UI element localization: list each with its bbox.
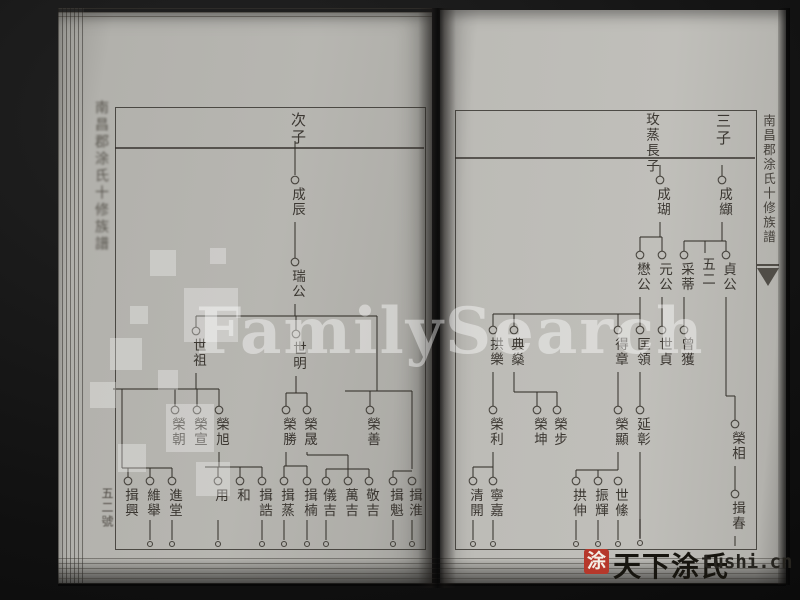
logo-square: [196, 462, 230, 496]
tree-node-label: 維舉: [142, 488, 162, 518]
node-circle: [391, 542, 396, 547]
tree-node-label: 延彰: [632, 417, 652, 447]
node-circle: [594, 477, 602, 485]
fishtail-bar: [757, 264, 779, 266]
logo-square: [210, 248, 226, 264]
node-circle: [722, 251, 730, 259]
logo-square: [166, 404, 214, 452]
node-circle: [636, 251, 644, 259]
node-circle: [680, 251, 688, 259]
node-circle: [291, 258, 299, 266]
node-circle: [469, 477, 477, 485]
tree-node-label: 世絛: [610, 488, 630, 518]
node-circle: [389, 477, 397, 485]
tree-node-label: 榮利: [485, 417, 505, 447]
scanned-book-spread: 次子 玫蒸長子 三子 成辰瑞公世祖世明榮朝榮宣榮旭榮勝榮晟榮善揖興維舉進堂用和揖…: [0, 0, 800, 600]
logo-square: [158, 370, 178, 390]
tree-node-label: 寧嘉: [485, 488, 505, 518]
tushi-site-text: tushi.cn: [701, 551, 793, 573]
node-circle: [410, 542, 415, 547]
spine-title-text: 南昌郡涂氏十修族譜: [90, 100, 110, 253]
logo-square: [110, 338, 142, 370]
tree-node-label: 進堂: [164, 488, 184, 518]
tree-node-label: 成辰: [287, 187, 307, 217]
tree-node-label: 元公: [654, 262, 674, 292]
tree-node-label: 揖蒸: [276, 488, 296, 518]
node-circle: [168, 477, 176, 485]
node-circle: [280, 477, 288, 485]
tree-node-label: 采蒂: [676, 262, 696, 292]
fishtail-icon: [757, 268, 779, 286]
tree-node-label: 儀吉: [318, 488, 338, 518]
tree-node-label: 榮步: [549, 417, 569, 447]
node-circle: [291, 176, 299, 184]
node-circle: [215, 406, 223, 414]
tree-node-label: 榮相: [727, 431, 747, 461]
tree-node-label: 榮勝: [278, 417, 298, 447]
node-circle: [718, 176, 726, 184]
left-header-label: 次子: [287, 112, 308, 146]
node-circle: [148, 542, 153, 547]
tree-node-label: 揖興: [120, 488, 140, 518]
node-circle: [656, 176, 664, 184]
tree-node-label: 貞公: [718, 262, 738, 292]
node-circle: [124, 477, 132, 485]
node-circle: [305, 542, 310, 547]
tree-node-label: 榮善: [362, 417, 382, 447]
node-circle: [572, 477, 580, 485]
book-spine-edge: [58, 8, 84, 583]
node-circle: [236, 477, 244, 485]
tree-node-label: 振輝: [590, 488, 610, 518]
node-circle: [489, 406, 497, 414]
node-circle: [344, 477, 352, 485]
tree-node-label: 和: [232, 488, 252, 503]
node-circle: [731, 490, 739, 498]
right-header-secondary-label: 三子: [712, 113, 733, 147]
tree-node-label: 成瑚: [652, 187, 672, 217]
leaf-number: 五二號: [99, 487, 116, 529]
tree-node-label: 萬吉: [340, 488, 360, 518]
tree-node-label: 榮旭: [211, 417, 231, 447]
tree-node-label: 榮顯: [610, 417, 630, 447]
node-circle: [614, 477, 622, 485]
node-circle: [471, 542, 476, 547]
logo-square: [150, 250, 176, 276]
node-circle: [282, 406, 290, 414]
tree-node-label: 揖春: [727, 501, 747, 531]
tree-node-label: 成纈: [714, 187, 734, 217]
right-header-primary-label: 玫蒸長子: [643, 112, 660, 150]
page-stack-top-edge: [58, 8, 432, 20]
tree-node-label: 揖誥: [254, 488, 274, 518]
node-circle: [324, 542, 329, 547]
banxin-title: 南昌郡涂氏十修族譜: [759, 114, 778, 245]
node-circle: [731, 420, 739, 428]
tree-node-label: 敬吉: [361, 488, 381, 518]
logo-square: [90, 382, 116, 408]
tree-node-label: 拱伸: [568, 488, 588, 518]
node-circle: [216, 542, 221, 547]
node-circle: [658, 251, 666, 259]
node-circle: [170, 542, 175, 547]
logo-square: [130, 306, 148, 324]
node-circle: [574, 542, 579, 547]
node-circle: [303, 406, 311, 414]
node-circle: [553, 406, 561, 414]
page-right-edge: [778, 8, 790, 585]
tree-node-label: 榮坤: [529, 417, 549, 447]
node-circle: [366, 406, 374, 414]
tree-node-label: 懋公: [632, 262, 652, 292]
logo-square: [118, 444, 146, 472]
node-circle: [614, 406, 622, 414]
tree-node-label: 榮晟: [299, 417, 319, 447]
tree-node-label: 五二: [697, 257, 717, 287]
tushi-seal-icon: 涂: [584, 549, 609, 574]
node-circle: [258, 477, 266, 485]
node-circle: [636, 406, 644, 414]
node-circle: [533, 406, 541, 414]
node-circle: [491, 542, 496, 547]
node-circle: [596, 542, 601, 547]
node-circle: [322, 477, 330, 485]
tree-node-label: 揖楠: [299, 488, 319, 518]
node-circle: [282, 542, 287, 547]
node-circle: [365, 477, 373, 485]
node-circle: [408, 477, 416, 485]
node-circle: [146, 477, 154, 485]
node-circle: [489, 477, 497, 485]
node-circle: [260, 542, 265, 547]
tree-node-label: 揖魁: [385, 488, 405, 518]
tree-node-label: 清開: [465, 488, 485, 518]
familysearch-watermark-text: FamilySearch: [196, 294, 705, 369]
node-circle: [303, 477, 311, 485]
